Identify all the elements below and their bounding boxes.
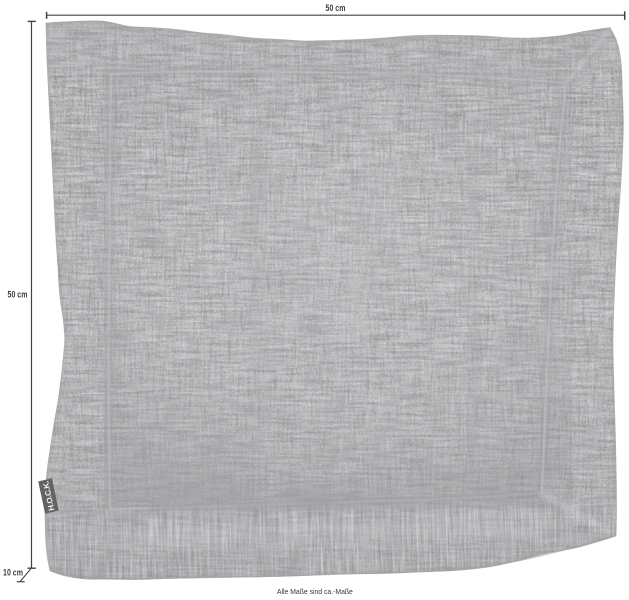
svg-text:10 cm: 10 cm	[3, 568, 23, 578]
svg-text:Alle Maße sind ca.-Maße: Alle Maße sind ca.-Maße	[277, 587, 353, 596]
svg-text:50 cm: 50 cm	[8, 289, 28, 299]
svg-text:50 cm: 50 cm	[326, 3, 346, 13]
